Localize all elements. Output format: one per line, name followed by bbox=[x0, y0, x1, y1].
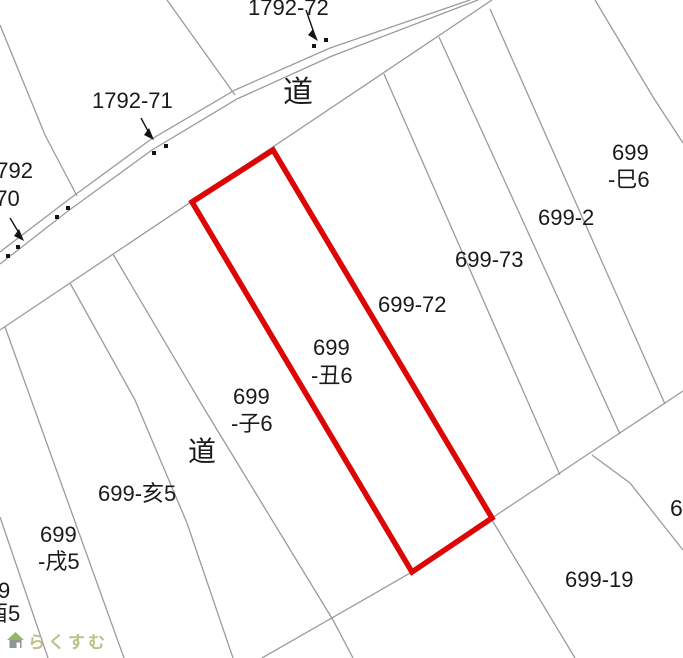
leader-line-1792-70 bbox=[10, 218, 19, 233]
survey-point-dot bbox=[55, 215, 59, 219]
survey-point-dot bbox=[66, 206, 70, 210]
parcel-label-parcel-699-ushi6-line2: -丑6 bbox=[311, 363, 353, 388]
parcel-label-parcel-1792-71: 1792-71 bbox=[92, 88, 173, 113]
parcel-label-parcel-699-ne6-line1: 699 bbox=[233, 384, 270, 409]
parcel-label-road-label-top: 道 bbox=[283, 76, 313, 111]
highlighted-parcel-outline bbox=[192, 150, 492, 572]
road-north-edge-inner bbox=[0, 0, 478, 264]
house-icon bbox=[7, 632, 24, 649]
parcel-label-parcel-699-ne6-line2: -子6 bbox=[231, 411, 273, 436]
survey-point-dot bbox=[6, 254, 10, 258]
b-73-2 bbox=[439, 37, 620, 434]
parcel-label-parcel-699-2: 699-2 bbox=[538, 205, 594, 230]
parcel-label-parcel-699-inu5-line2: -戌5 bbox=[38, 549, 80, 574]
logo-text: らくすむ bbox=[28, 628, 108, 653]
b-east-of-mi6 bbox=[595, 0, 683, 143]
survey-point-dot bbox=[164, 144, 168, 148]
parcel-label-road-label-bottom: 道 bbox=[188, 436, 216, 468]
leader-arrowhead-1792-71 bbox=[144, 128, 154, 140]
survey-point-dot bbox=[312, 44, 316, 48]
survey-point-dot bbox=[16, 245, 20, 249]
b-1792-71-72 bbox=[167, 0, 235, 95]
leader-arrowhead-1792-72 bbox=[308, 29, 318, 41]
parcel-label-parcel-699-inu5-line1: 699 bbox=[40, 522, 77, 547]
parcel-label-parcel-1792-72: 1792-72 bbox=[248, 0, 329, 20]
road-north-edge-outer bbox=[0, 0, 470, 252]
parcel-label-parcel-699-72: 699-72 bbox=[378, 292, 447, 317]
parcel-label-parcel-cut-9: 9 bbox=[0, 578, 10, 603]
parcel-label-parcel-699-73: 699-73 bbox=[455, 247, 524, 272]
b-72-73 bbox=[384, 74, 560, 475]
parcel-label-parcel-cut-tori5: 酉5 bbox=[0, 601, 20, 626]
parcel-label-parcel-cut-6: 6 bbox=[670, 495, 683, 521]
parcel-label-parcel-699-ushi6-line1: 699 bbox=[313, 335, 350, 360]
b-19-west bbox=[492, 520, 575, 658]
rakusumu-logo: らくすむ bbox=[7, 628, 108, 653]
parcel-label-parcel-699-i5: 699-亥5 bbox=[98, 481, 176, 506]
parcel-label-parcel-699-mi6-line1: 699 bbox=[612, 140, 649, 165]
parcel-label-parcel-1792-70-line1: 1792 bbox=[0, 158, 33, 183]
cadastral-map: 1792-72道1792-711792-70699-巳6699-2699-736… bbox=[0, 0, 683, 658]
b-west-of-road-strip bbox=[70, 283, 233, 658]
parcel-label-parcel-699-mi6-line2: -巳6 bbox=[608, 167, 650, 192]
b-roadstrip-ko6 bbox=[113, 254, 353, 658]
parcel-label-parcel-699-19: 699-19 bbox=[565, 567, 634, 592]
survey-point-dot bbox=[324, 38, 328, 42]
parcel-label-parcel-1792-70-line2: -70 bbox=[0, 186, 20, 211]
survey-point-dot bbox=[152, 151, 156, 155]
